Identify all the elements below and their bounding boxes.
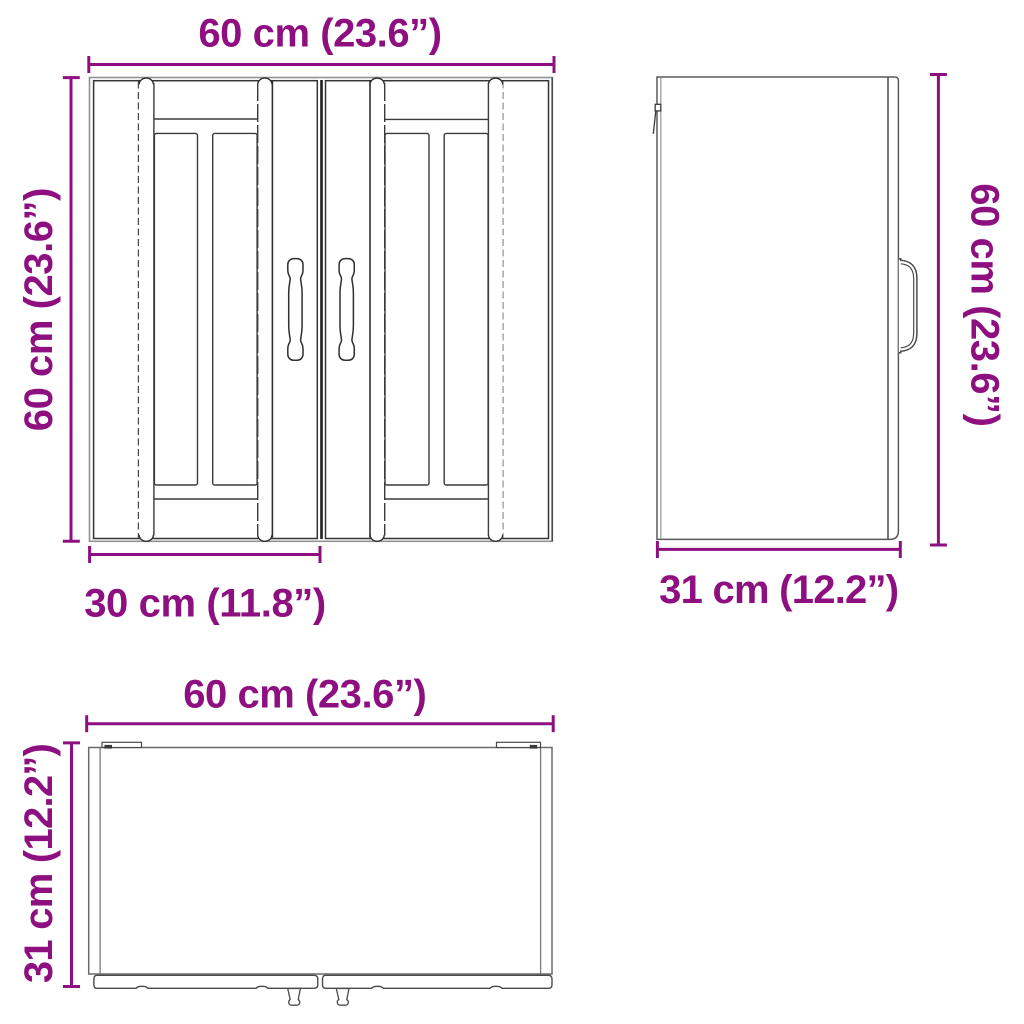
svg-text:60 cm (23.6”): 60 cm (23.6”) — [963, 183, 1007, 426]
svg-text:60 cm (23.6”): 60 cm (23.6”) — [183, 672, 426, 716]
svg-text:31 cm (12.2”): 31 cm (12.2”) — [659, 568, 898, 612]
svg-text:60 cm (23.6”): 60 cm (23.6”) — [17, 188, 61, 431]
svg-text:30 cm (11.8”): 30 cm (11.8”) — [84, 581, 326, 625]
svg-text:60 cm (23.6”): 60 cm (23.6”) — [198, 12, 441, 56]
svg-text:31 cm (12.2”): 31 cm (12.2”) — [17, 744, 61, 983]
